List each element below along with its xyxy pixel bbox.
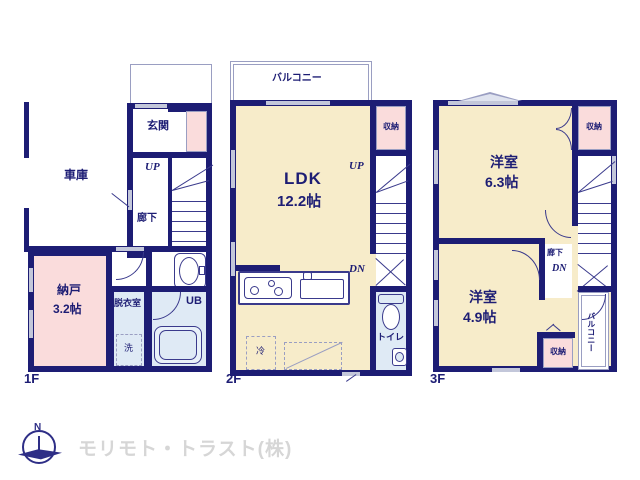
floor-plan-canvas: 車庫 玄関 UP 廊下 UB 納戸 3.2帖 脱衣室 洗 1F バルコニー — [0, 0, 640, 480]
stove-burner — [274, 287, 283, 296]
stairs-2f — [376, 194, 406, 256]
fridge-label: 冷 — [256, 347, 265, 357]
room-b-size-label: 4.9帖 — [463, 310, 496, 325]
floor1-label: 1F — [24, 372, 39, 386]
storage-label: 納戸 — [57, 284, 81, 297]
entrance-label: 玄関 — [147, 120, 169, 132]
window-mark — [434, 250, 438, 280]
window-mark — [29, 268, 33, 292]
entrance-door-mark — [135, 104, 167, 108]
balcony-3f-label: バルコニー — [586, 312, 595, 352]
compass-n-label: N — [34, 422, 41, 433]
door-mark — [492, 368, 520, 372]
stairs-3f — [578, 194, 611, 262]
kitchen-sink — [300, 279, 344, 299]
corner-sink-basin — [395, 352, 404, 362]
bathtub-inner — [159, 330, 197, 360]
ldk-size-label: 12.2帖 — [277, 194, 321, 211]
floor2-label: 2F — [226, 372, 241, 386]
company-name: モリモト・トラスト(株) — [78, 440, 292, 461]
ldk-label: LDK — [284, 170, 322, 189]
room-b-label: 洋室 — [469, 290, 497, 305]
wall — [24, 102, 29, 158]
stairs-1f — [172, 192, 206, 252]
window-mark — [448, 101, 518, 105]
balcony-2f-label: バルコニー — [272, 73, 322, 84]
toilet-label: トイレ — [377, 333, 404, 343]
toilet-bowl-2f — [382, 304, 400, 330]
door-gap — [116, 247, 144, 251]
window-mark — [29, 310, 33, 338]
closet-2f-label: 収納 — [383, 123, 399, 132]
faucet — [303, 272, 312, 280]
storage-size-label: 3.2帖 — [53, 303, 82, 316]
room-a-label: 洋室 — [490, 155, 518, 170]
dressing-label: 脱衣室 — [114, 299, 141, 309]
porch-outline — [130, 64, 212, 106]
floor3-label: 3F — [430, 372, 445, 386]
washer-label: 洗 — [124, 344, 133, 354]
garage-label: 車庫 — [64, 169, 88, 182]
balcony-door-mark — [266, 101, 330, 105]
window-mark — [434, 300, 438, 326]
entrance-closet — [186, 111, 207, 152]
hallway-3f-label: 廊下 — [547, 249, 563, 258]
toilet-bowl-1f — [179, 257, 199, 285]
toilet-tank-2f — [378, 294, 404, 304]
closet-3f-bottom-label: 収納 — [550, 348, 566, 357]
dn-label-3f: DN — [552, 263, 566, 274]
hallway-label-1f: 廊下 — [137, 213, 157, 224]
window-mark — [231, 242, 235, 276]
up-label-1f: UP — [145, 161, 160, 173]
ub-label: UB — [186, 295, 202, 307]
roof-vent-inner — [461, 94, 519, 101]
stove-burner — [250, 286, 259, 295]
toilet-tank-1f — [199, 266, 205, 275]
window-mark — [434, 150, 438, 184]
wall — [433, 238, 545, 244]
closet-3f-top-label: 収納 — [586, 123, 602, 132]
window-mark — [231, 150, 235, 188]
dn-label-2f: DN — [349, 263, 365, 275]
room-a-size-label: 6.3帖 — [485, 175, 518, 190]
stove-burner — [268, 280, 275, 287]
up-label-2f: UP — [349, 160, 364, 172]
door-mark — [342, 372, 360, 376]
door-arc — [116, 252, 144, 280]
